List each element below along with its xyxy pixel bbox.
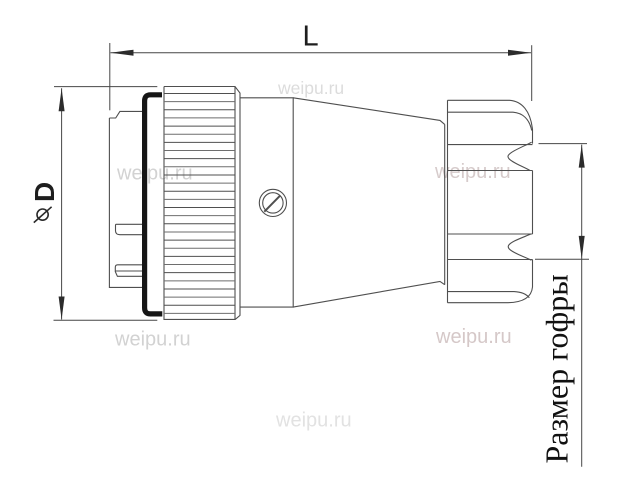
svg-text:Размер гофры: Размер гофры — [539, 274, 575, 463]
svg-text:weipu.ru: weipu.ru — [434, 161, 511, 183]
svg-text:weipu.ru: weipu.ru — [114, 329, 191, 351]
svg-text:weipu.ru: weipu.ru — [116, 163, 193, 185]
svg-text:weipu.ru: weipu.ru — [275, 410, 352, 432]
svg-text:weipu.ru: weipu.ru — [435, 326, 512, 348]
svg-text:weipu.ru: weipu.ru — [277, 78, 344, 98]
svg-text:L: L — [303, 21, 319, 53]
svg-text:D: D — [29, 182, 60, 202]
